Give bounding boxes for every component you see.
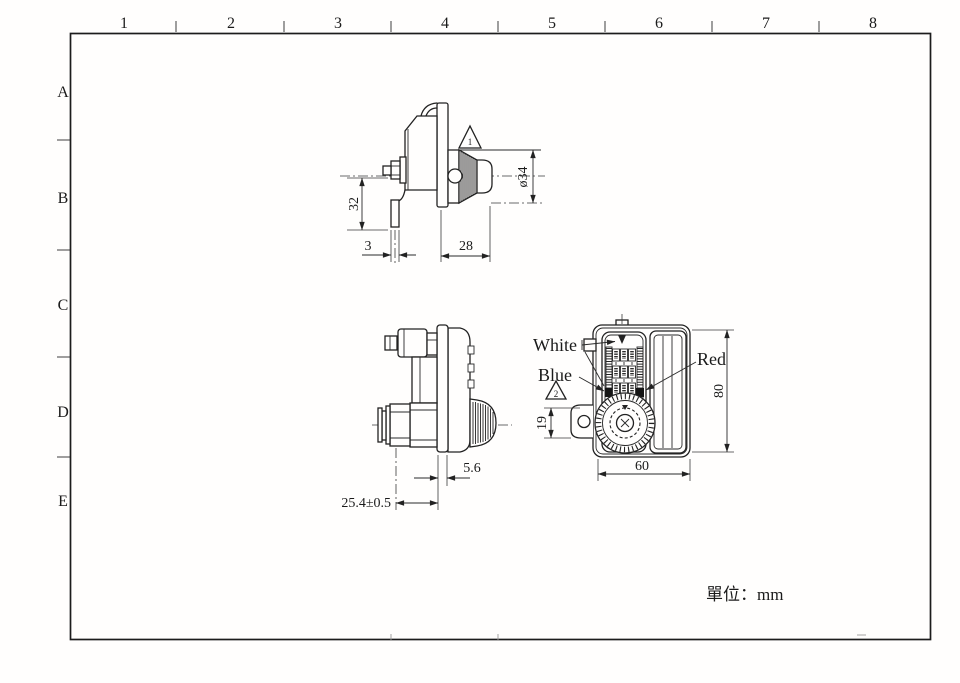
dim-text-60: 60 (635, 459, 649, 474)
col-label-8: 8 (869, 15, 877, 32)
revision-number: 1 (468, 137, 473, 147)
view-side-upper: 1 32 3 28 ø34 (340, 103, 545, 263)
dimension-3: 3 (362, 230, 416, 263)
dimension-60: 60 (598, 459, 690, 481)
dim-text-5-6: 5.6 (463, 461, 481, 476)
unit-note: 單位：mm (706, 585, 783, 604)
shaft-circle (448, 169, 462, 183)
digit-wheel-windows (613, 349, 636, 395)
latch-panel (650, 331, 686, 453)
cam-stack (378, 403, 437, 447)
ruler-column-labels: 1 2 3 4 5 6 7 8 (120, 15, 877, 32)
ear-hole (578, 416, 590, 428)
row-label-E: E (58, 493, 68, 510)
row-label-A: A (57, 84, 69, 101)
dim-text-19: 19 (535, 416, 550, 430)
mounting-plate (437, 103, 448, 207)
dim-text-32: 32 (347, 197, 362, 211)
hook-leg (391, 200, 399, 227)
revision-number: 2 (554, 389, 559, 399)
label-red: Red (697, 349, 726, 369)
label-blue: Blue (538, 365, 572, 385)
dimension-dia34: ø34 (516, 150, 533, 203)
col-label-2: 2 (227, 15, 235, 32)
row-label-B: B (58, 190, 69, 207)
dim-text-dia34: ø34 (516, 167, 531, 188)
knurled-knob (448, 150, 492, 203)
dim-text-28: 28 (459, 239, 473, 254)
clamp-nut (383, 157, 406, 183)
mounting-ear (571, 405, 593, 438)
revision-triangle-1: 1 (459, 126, 481, 148)
handle-loop (421, 103, 437, 116)
label-white: White (533, 335, 577, 355)
row-label-D: D (57, 404, 69, 421)
col-label-5: 5 (548, 15, 556, 32)
dim-text-25-4: 25.4±0.5 (341, 496, 391, 511)
ruler-ticks-top (176, 21, 819, 32)
technical-drawing: 1 2 3 4 5 6 7 8 A B C D E (0, 0, 960, 683)
dimension-5-6: 5.6 (414, 455, 481, 510)
col-label-4: 4 (441, 15, 449, 32)
col-label-1: 1 (120, 15, 128, 32)
dimension-32: 32 (347, 178, 388, 230)
dimension-28: 28 (441, 206, 490, 262)
mid-body (412, 357, 437, 403)
col-label-7: 7 (762, 15, 770, 32)
sheet-border: 1 2 3 4 5 6 7 8 A B C D E (57, 15, 931, 640)
drawing-sheet: 1 2 3 4 5 6 7 8 A B C D E (0, 0, 960, 683)
rotary-dial (595, 393, 655, 453)
knurled-knob (470, 399, 496, 447)
mounting-plate (437, 325, 448, 452)
col-label-3: 3 (334, 15, 342, 32)
row-label-C: C (58, 297, 69, 314)
dim-text-3: 3 (365, 239, 372, 254)
col-label-6: 6 (655, 15, 663, 32)
dim-text-80: 80 (712, 384, 727, 398)
dimension-25-4: 25.4±0.5 (341, 448, 438, 511)
ruler-row-labels: A B C D E (57, 84, 69, 510)
bolt-and-bracket (385, 329, 437, 357)
view-side-lower: 5.6 25.4±0.5 (341, 325, 512, 511)
view-front: 2 White Blue Red 19 80 (533, 314, 734, 481)
